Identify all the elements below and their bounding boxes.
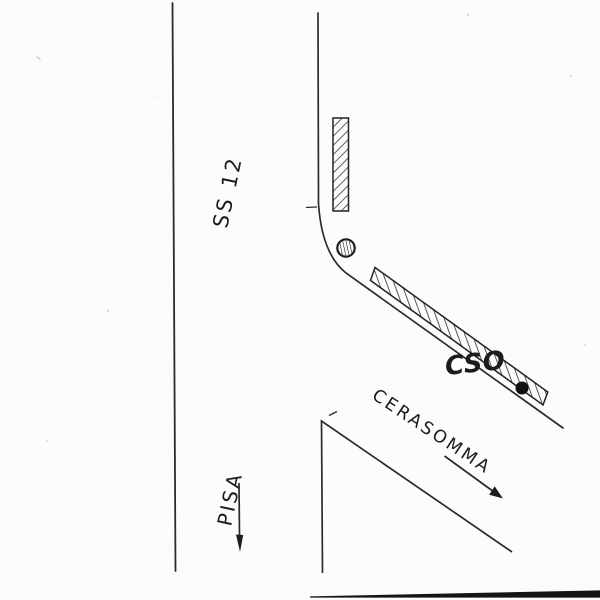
paper-background — [0, 0, 600, 600]
hatched-circle-marker — [337, 239, 354, 256]
hatched-building-strip-vertical — [333, 118, 349, 211]
site-location-dot — [516, 382, 529, 395]
scanned-sketch-map: SS 12 PISA CERASOMMA CSO — [0, 0, 600, 600]
road-junction-sketch: SS 12 PISA CERASOMMA CSO — [0, 0, 600, 600]
site-label-cso: CSO — [444, 346, 507, 382]
pen-tick-curve — [306, 207, 317, 208]
